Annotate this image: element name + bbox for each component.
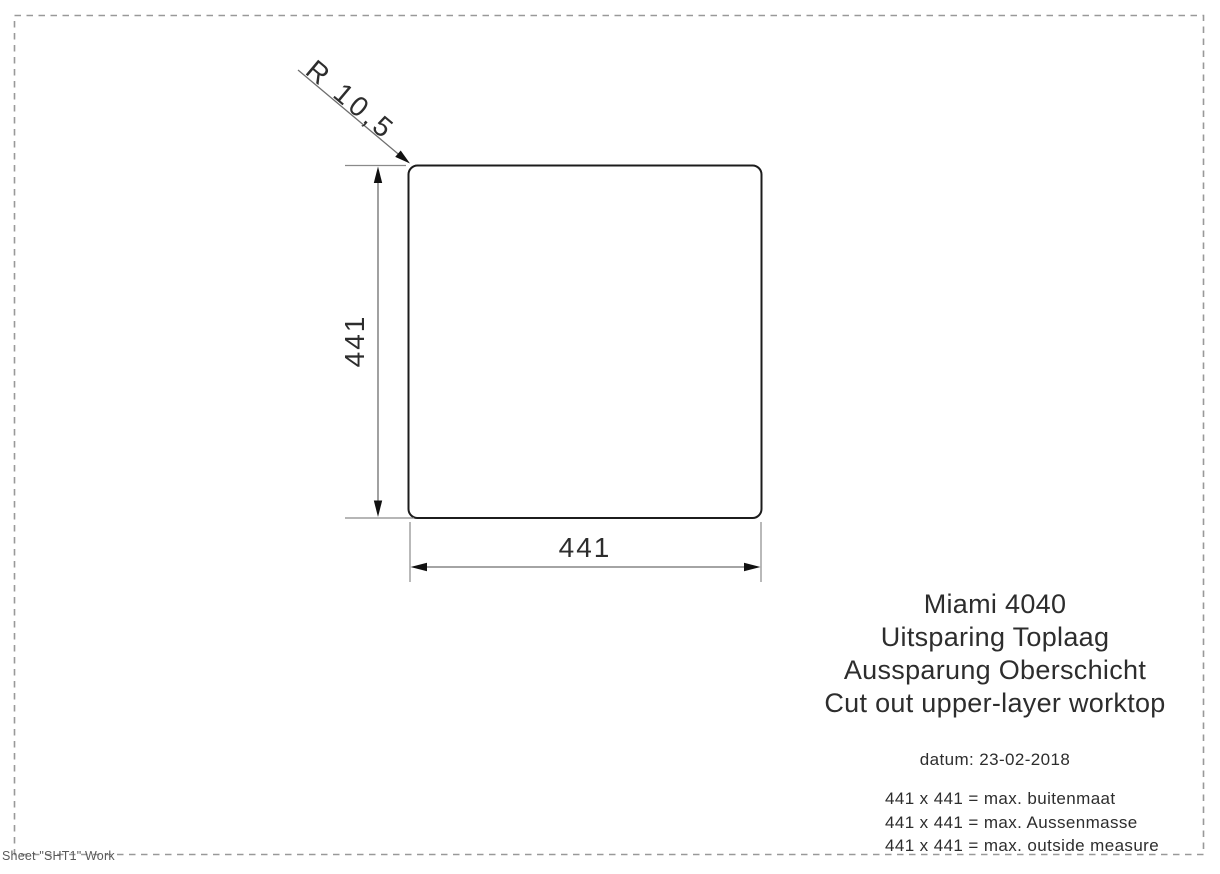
title-block: Miami 4040 Uitsparing Toplaag Aussparung… xyxy=(788,588,1202,720)
sheet-name-label: Sheet "SHT1" Work xyxy=(2,849,115,863)
model-name: Miami 4040 xyxy=(788,588,1202,621)
measure-block: 441 x 441 = max. buitenmaat 441 x 441 = … xyxy=(885,787,1215,858)
arrowhead-up-icon xyxy=(374,167,382,184)
measure-line-de: 441 x 441 = max. Aussenmasse xyxy=(885,811,1215,835)
arrowhead-leader-icon xyxy=(395,151,410,164)
radius-label: R 10,5 xyxy=(300,54,402,146)
drawing-sheet: 441 441 R 10,5 Miami 4040 Uitsparing Top… xyxy=(0,0,1220,874)
title-line-en: Cut out upper-layer worktop xyxy=(788,687,1202,720)
cad-drawing: 441 441 R 10,5 xyxy=(0,0,1220,874)
title-line-de: Aussparung Oberschicht xyxy=(788,654,1202,687)
title-line-nl: Uitsparing Toplaag xyxy=(788,621,1202,654)
measure-line-nl: 441 x 441 = max. buitenmaat xyxy=(885,787,1215,811)
horizontal-dimension-label: 441 xyxy=(559,532,612,563)
date-label: datum: 23-02-2018 xyxy=(788,750,1202,770)
sheet-border xyxy=(15,16,1204,855)
arrowhead-down-icon xyxy=(374,501,382,518)
measure-line-en: 441 x 441 = max. outside measure xyxy=(885,834,1215,858)
cutout-outline xyxy=(409,166,762,519)
arrowhead-left-icon xyxy=(411,563,428,571)
vertical-dimension-label: 441 xyxy=(339,315,370,368)
arrowhead-right-icon xyxy=(744,563,761,571)
